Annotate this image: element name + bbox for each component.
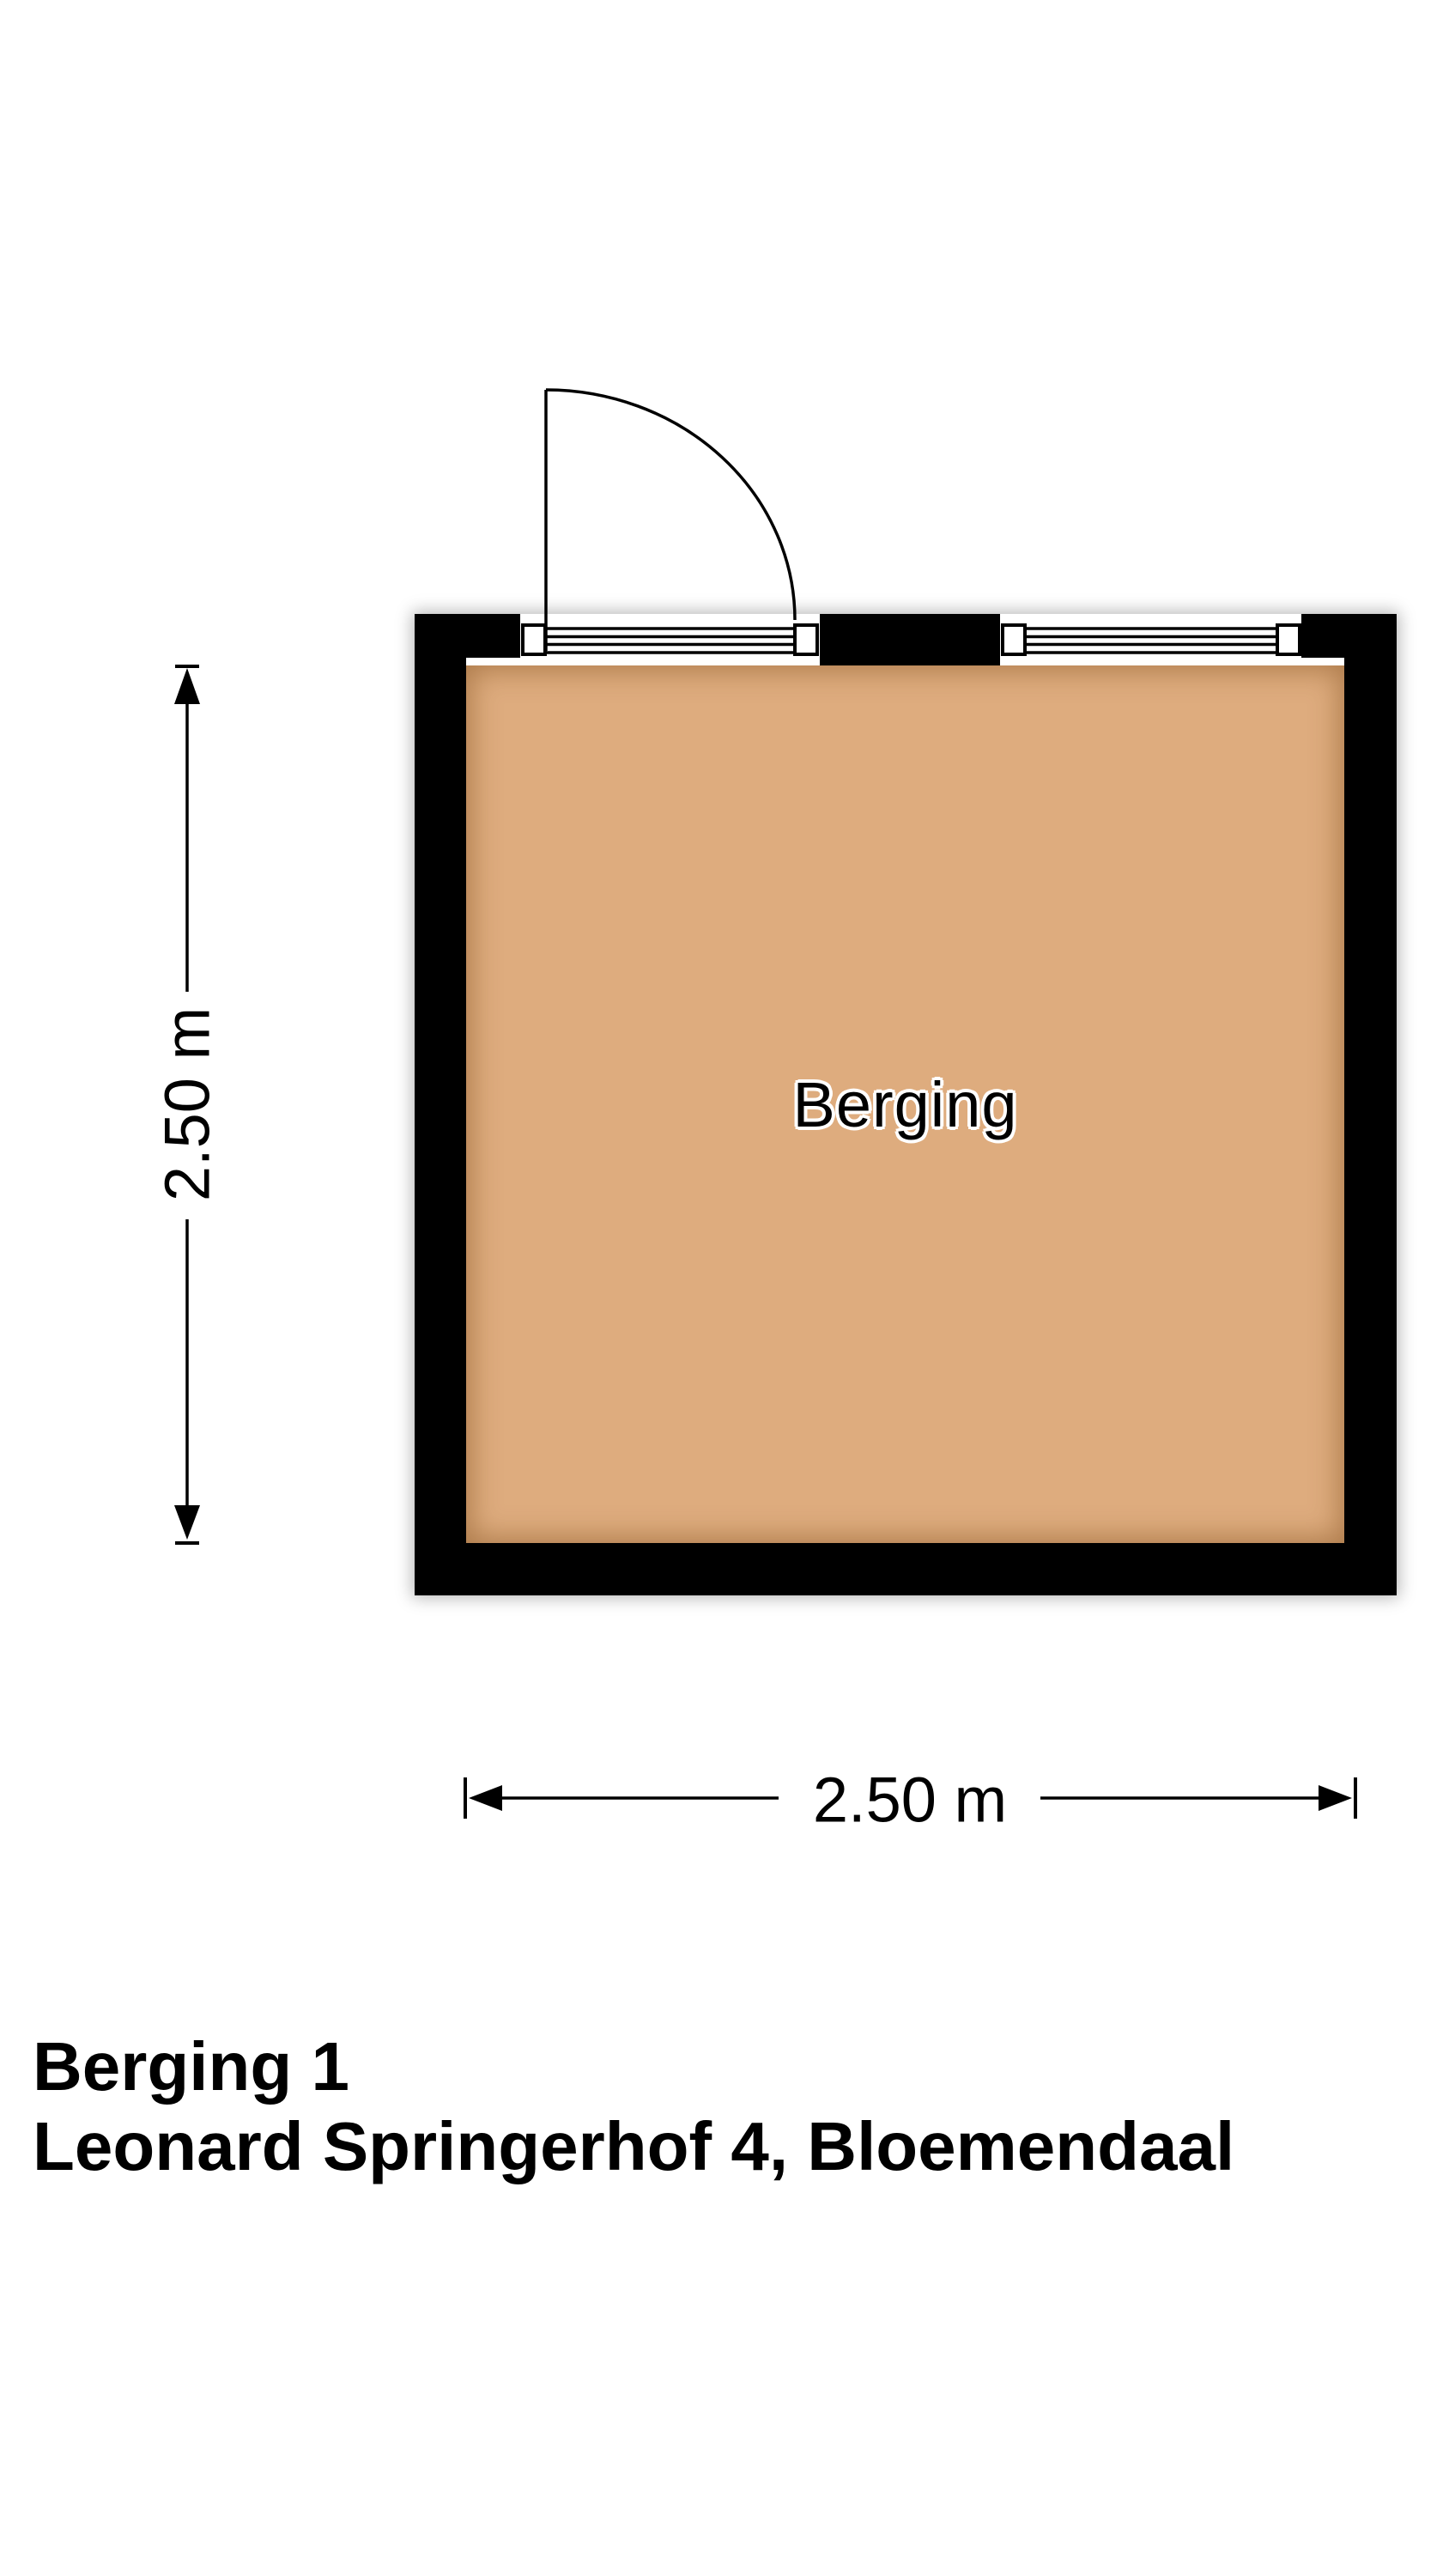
dim-horizontal: 2.50 m xyxy=(465,1765,1355,1836)
window-panel xyxy=(1025,629,1277,653)
window-symbol xyxy=(1003,625,1300,654)
floorplan-canvas: 2.50 m 2.50 m Berging Berging 1 Leonard … xyxy=(0,0,1449,2576)
footer-title: Berging 1 xyxy=(33,2026,1234,2106)
dim-horizontal-label: 2.50 m xyxy=(813,1765,1007,1836)
door-post-right xyxy=(795,625,817,654)
dim-vertical-label: 2.50 m xyxy=(152,1007,223,1201)
dim-horizontal-arrow-left xyxy=(469,1785,502,1811)
dim-vertical-arrow-down xyxy=(174,1505,200,1540)
door-swing-arc xyxy=(546,390,795,620)
door-swing xyxy=(546,390,795,651)
dim-vertical-arrow-up xyxy=(174,668,200,704)
footer-address: Leonard Springerhof 4, Bloemendaal xyxy=(33,2106,1234,2186)
window-post-right xyxy=(1277,625,1300,654)
dim-vertical: 2.50 m xyxy=(152,666,223,1543)
plan-overlay: 2.50 m 2.50 m xyxy=(0,0,1449,2576)
door-post-left xyxy=(523,625,545,654)
door-panel xyxy=(545,629,795,653)
window-post-left xyxy=(1003,625,1025,654)
dim-horizontal-arrow-right xyxy=(1319,1785,1352,1811)
door-frame-symbol xyxy=(523,625,817,654)
footer: Berging 1 Leonard Springerhof 4, Bloemen… xyxy=(33,2026,1234,2186)
